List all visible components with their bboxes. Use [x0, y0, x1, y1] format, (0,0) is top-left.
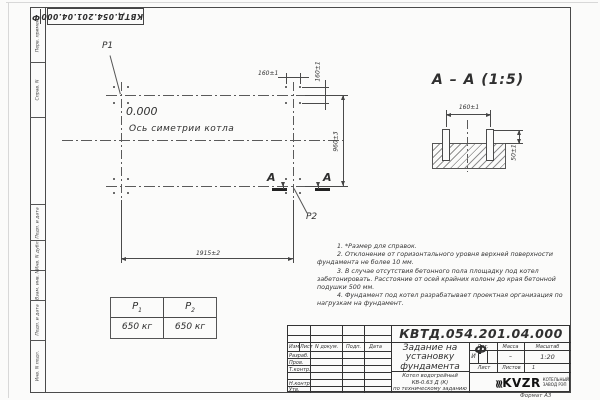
anchor-bolt-dot [113, 178, 115, 180]
scale-value: 1:20 [524, 353, 571, 361]
tb-row-prov: Пров. [289, 360, 304, 366]
stamp-doc-number: КВТД.054.201.04.000 [41, 12, 143, 21]
dim-label-sec160: 160±1 [448, 104, 490, 111]
tb-grid [342, 326, 343, 393]
drawing-sheet: Перв. примен. Справ. N Подп. и дата Инв.… [0, 0, 600, 400]
kvzr-logo-mark [494, 374, 502, 392]
frame-cell-label: Инв. N дубл. [35, 239, 40, 269]
dim-label-sec50: 50±1 [511, 144, 518, 160]
anchor-bolt-section [486, 129, 494, 161]
frame-cell-vzam-inv: Взам. инв. N [30, 270, 45, 301]
section-view-title: А – А (1:5) [432, 72, 524, 88]
anchor-bolt-dot [113, 192, 115, 194]
ext-line [121, 200, 122, 263]
load-table: P1 P2 650 кг 650 кг [110, 297, 217, 339]
anchor-bolt-dot [299, 192, 301, 194]
ext-line [293, 200, 294, 263]
ext-line [300, 73, 301, 84]
tb-header-izm: Изм. [289, 344, 301, 350]
sheets-label: Листов [502, 365, 521, 371]
frame-cell-label: Подп. и дата [35, 207, 40, 238]
anchor-bolt-dot [299, 86, 301, 88]
frame-cell-inv-dubl: Инв. N дубл. [30, 239, 45, 271]
dim-line [278, 77, 309, 78]
scale-label: Масштаб [524, 344, 571, 350]
anchor-bolt-section [442, 129, 450, 161]
anchor-bolt-dot [285, 102, 287, 104]
tb-row-utv: Утв. [289, 387, 300, 393]
anchor-bolt-dot [127, 192, 129, 194]
lit-value: И [469, 353, 478, 360]
dim-label-960: 960±3 [333, 131, 340, 151]
tb-grid [288, 335, 391, 336]
anchor-bolt-dot [299, 178, 301, 180]
frame-cell-sprav-n: Справ. N [30, 62, 45, 118]
tb-header-podp: Подп. [346, 344, 361, 350]
kvzr-logo-sub-line: ЗАВОД РЭП [543, 383, 569, 388]
title-block: КВТД.054.201.04.000 Ф Изм. Лист N докум.… [287, 325, 570, 392]
dim-arrow [121, 257, 126, 261]
dim-label-1915: 1915±2 [188, 250, 228, 257]
anchor-bolt-dot [113, 102, 115, 104]
dim-line [121, 258, 293, 259]
tb-row-nkontr: Н.контр. [289, 381, 311, 387]
load-value-p1: 650 кг [111, 322, 163, 332]
product-subtitle-line: по техническому заданию [391, 386, 469, 393]
section-view-arrow [281, 182, 285, 187]
dim-arrow [446, 113, 451, 117]
dim-arrow [517, 130, 521, 135]
load-table-header-p1: P1 [111, 301, 163, 314]
product-subtitle: Котел водогрейный КВ-0.63 Д (К) по техни… [391, 372, 469, 394]
tb-header-list: Лист [300, 344, 313, 350]
frame-cell-label: Подп. и дата [35, 304, 40, 335]
frame-cell-label: Взам. инв. N [35, 270, 40, 300]
leader-line-p1 [110, 55, 121, 94]
anchor-bolt-dot [285, 86, 287, 88]
dim-line [343, 95, 344, 186]
note-item: 4. Фундамент под котел разрабатывает про… [317, 292, 564, 308]
p-subscript: 1 [138, 307, 142, 314]
section-mark-letter: А [323, 171, 332, 184]
frame-cell-podp-data-2: Подп. и дата [30, 300, 45, 341]
note-item: 1. *Размер для справок. [317, 243, 564, 251]
p-subscript: 2 [191, 307, 195, 314]
lit-label: Лит. [469, 344, 497, 350]
load-table-header-p2: P2 [164, 301, 216, 314]
format-note: Формат А3 [520, 393, 551, 399]
doc-number: КВТД.054.201.04.000 Ф [391, 326, 571, 342]
doc-title-line: фундамента [391, 363, 469, 372]
frame-cell-label: Инв. N подл. [35, 351, 40, 381]
note-item: 2. Отклонение от горизонтального уровня … [317, 251, 564, 267]
mass-label: Масса [497, 344, 524, 350]
frame-cell-label: Справ. N [35, 79, 40, 100]
doc-title: Задание на установку фундамента [391, 343, 469, 372]
anchor-bolt-dot [285, 178, 287, 180]
tb-grid [469, 363, 571, 364]
load-point-p2-label: P2 [306, 212, 317, 222]
frame-line [45, 7, 46, 393]
symmetry-axis-label: Ось симетрии котла [129, 124, 234, 134]
section-mark-letter: А [267, 171, 276, 184]
mass-value: – [497, 353, 524, 360]
tb-header-data: Дата [369, 344, 382, 350]
tb-header-ndokum: N докум. [315, 344, 338, 350]
frame-cell-inv-podl: Инв. N подл. [30, 340, 45, 392]
technical-notes: 1. *Размер для справок. 2. Отклонение от… [317, 243, 564, 309]
ext-line [305, 186, 348, 187]
dim-arrow [517, 139, 521, 144]
ext-line [286, 73, 287, 84]
frame-cell-podp-data-1: Подп. и дата [30, 204, 45, 241]
anchor-bolt-dot [127, 86, 129, 88]
kvzr-logo-sub: КОТЕЛЬНЫЙ ЗАВОД РЭП [543, 378, 569, 387]
dim-label-160v: 160±1 [315, 61, 322, 81]
rotated-doc-stamp: КВТД.054.201.04.000 Ф [47, 8, 144, 25]
anchor-bolt-dot [299, 102, 301, 104]
tb-row-razrab: Разраб. [289, 353, 309, 359]
kvzr-logo-text: KVZR [502, 376, 541, 390]
load-point-p1-label: P1 [102, 41, 113, 51]
load-value-p2: 650 кг [164, 322, 216, 332]
sheet-edge [8, 2, 9, 398]
note-item: 3. В случае отсутствия бетонного пола пл… [317, 268, 564, 293]
dim-label-160h: 160±1 [258, 70, 278, 77]
dim-arrow [341, 181, 345, 186]
company-logo: KVZR КОТЕЛЬНЫЙ ЗАВОД РЭП [469, 372, 571, 393]
stamp-suffix: Ф [32, 9, 41, 24]
tb-grid [364, 326, 365, 393]
product-subtitle-line: Котел водогрейный [391, 373, 469, 380]
anchor-bolt-dot [127, 102, 129, 104]
sheet-edge [6, 2, 598, 3]
anchor-bolt-dot [113, 86, 115, 88]
dim-arrow [341, 95, 345, 100]
anchor-bolt-dot [285, 192, 287, 194]
symmetry-axis-line [62, 140, 345, 141]
sheets-value: 1 [532, 365, 535, 371]
dim-arrow [288, 257, 293, 261]
tb-row-tkontr: Т.контр. [289, 367, 311, 373]
anchor-bolt-dot [127, 178, 129, 180]
section-cut-stroke [272, 188, 287, 191]
sheet-label: Лист [469, 365, 499, 371]
table-grid-line [111, 317, 216, 318]
dim-line [446, 114, 491, 115]
dim-arrow [486, 113, 491, 117]
level-mark: 0.000 [126, 105, 158, 118]
